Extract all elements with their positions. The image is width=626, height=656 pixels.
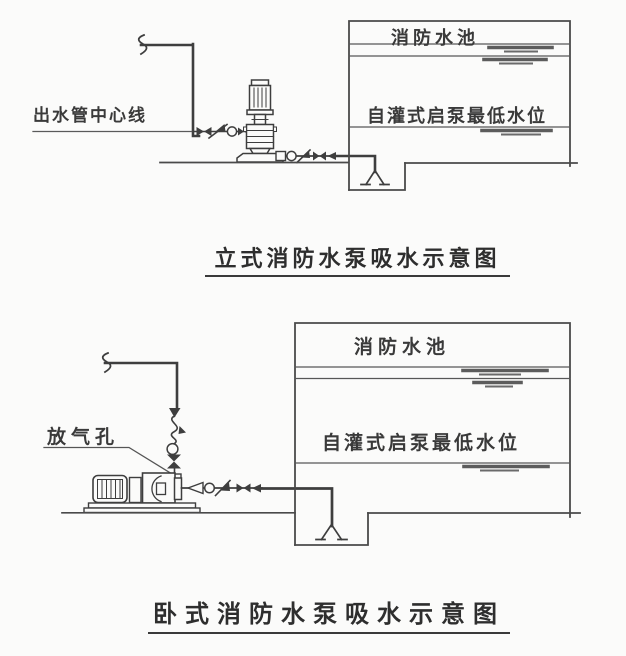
flow-arrow-icon <box>328 152 337 160</box>
gate-valve-icon <box>237 484 251 493</box>
suction-valve-group <box>182 481 348 540</box>
discharge-pipe <box>103 353 177 409</box>
flow-arrow-icon <box>252 484 261 493</box>
tank-title-top: 消防水池 <box>391 24 479 50</box>
flexible-joint-icon <box>167 444 178 455</box>
air-vent-leader-line <box>44 448 172 475</box>
discharge-valve-group <box>193 124 250 138</box>
min-water-level-label-bottom: 自灌式启泵最低水位 <box>322 428 520 455</box>
suction-flange <box>175 478 182 500</box>
suction-pipe <box>333 156 375 172</box>
check-valve-icon <box>171 416 186 444</box>
outlet-centerline-label: 出水管中心线 <box>33 101 147 126</box>
eccentric-reducer-icon <box>276 152 286 161</box>
motor-cap <box>252 80 269 86</box>
suction-pipe <box>260 489 332 527</box>
tank-title-bottom: 消防水池 <box>354 332 450 359</box>
gate-valve-icon <box>313 152 326 161</box>
flexible-joint-icon <box>205 483 215 493</box>
schematic-page: 出水管中心线 消防水池 自灌式启泵最低水位 立式消防水泵吸水示意图 放气孔 消防… <box>0 0 626 656</box>
water-level-icon <box>463 371 548 471</box>
gate-valve-icon <box>197 127 212 136</box>
caption-vertical-pump: 立式消防水泵吸水示意图 <box>205 241 510 277</box>
vertical-multistage-pump <box>237 80 283 162</box>
pump-base <box>89 503 196 508</box>
diagram-canvas <box>0 0 626 656</box>
air-vent-label: 放气孔 <box>47 422 119 449</box>
flexible-joint-icon <box>227 127 236 136</box>
discharge-pipe <box>139 35 199 136</box>
suction-sump <box>349 163 405 190</box>
caption-horizontal-pump: 卧式消防水泵吸水示意图 <box>148 594 510 634</box>
gate-valve-icon <box>167 455 181 469</box>
min-water-level-label-top: 自灌式启泵最低水位 <box>367 102 547 128</box>
bearing-frame <box>130 478 142 503</box>
horizontal-pump <box>84 473 200 513</box>
pump-base-plate <box>84 508 200 513</box>
flexible-joint-icon <box>287 151 296 160</box>
suction-valve-group <box>276 150 389 185</box>
motor-body <box>250 86 271 111</box>
eccentric-reducer-icon <box>188 483 203 494</box>
